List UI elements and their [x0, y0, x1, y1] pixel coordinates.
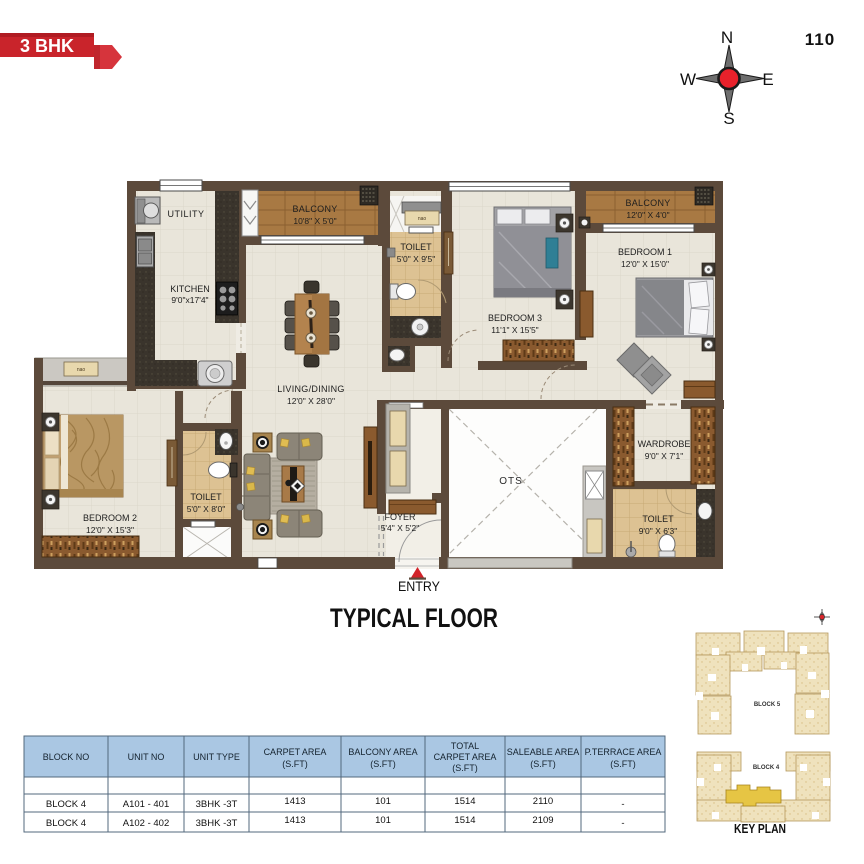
svg-text:UTILITY: UTILITY	[167, 209, 204, 219]
svg-text:(S.FT): (S.FT)	[530, 759, 556, 769]
svg-text:3BHK -3T: 3BHK -3T	[196, 818, 238, 829]
svg-text:S: S	[723, 109, 734, 128]
svg-text:nao: nao	[418, 216, 427, 222]
svg-text:CARPET AREA: CARPET AREA	[434, 752, 497, 762]
svg-text:2110: 2110	[533, 796, 553, 807]
svg-text:(S.FT): (S.FT)	[282, 759, 308, 769]
svg-text:OTS: OTS	[499, 476, 523, 487]
svg-text:BLOCK 4: BLOCK 4	[46, 799, 86, 810]
svg-text:12'0" X 4'0": 12'0" X 4'0"	[626, 210, 669, 220]
svg-text:UNIT NO: UNIT NO	[128, 752, 165, 762]
svg-text:CARPET AREA: CARPET AREA	[264, 747, 327, 757]
svg-text:5'0" X 8'0": 5'0" X 8'0"	[187, 504, 226, 514]
svg-text:9'0" X 6'3": 9'0" X 6'3"	[639, 526, 678, 536]
svg-text:TYPICAL FLOOR: TYPICAL FLOOR	[330, 603, 498, 633]
svg-text:12'0" X 15'3": 12'0" X 15'3"	[86, 525, 134, 535]
svg-text:UNIT TYPE: UNIT TYPE	[193, 752, 240, 762]
svg-text:TOILET: TOILET	[190, 492, 222, 502]
svg-text:(S.FT): (S.FT)	[610, 759, 636, 769]
svg-text:TOILET: TOILET	[642, 514, 674, 524]
svg-text:2109: 2109	[532, 815, 553, 826]
svg-text:ENTRY: ENTRY	[398, 578, 441, 594]
svg-text:nao: nao	[77, 367, 86, 373]
svg-text:12'0" X 15'0": 12'0" X 15'0"	[621, 259, 669, 269]
svg-text:P.TERRACE AREA: P.TERRACE AREA	[585, 747, 662, 757]
svg-text:1413: 1413	[284, 796, 305, 807]
svg-text:101: 101	[375, 796, 391, 807]
svg-text:A102 - 402: A102 - 402	[123, 818, 169, 829]
svg-text:A101 - 401: A101 - 401	[123, 799, 169, 810]
svg-text:-: -	[621, 818, 624, 829]
svg-text:3 BHK: 3 BHK	[20, 36, 74, 56]
svg-text:LIVING/DINING: LIVING/DINING	[277, 384, 344, 394]
svg-text:W: W	[680, 70, 696, 89]
svg-text:BEDROOM 1: BEDROOM 1	[618, 247, 672, 257]
svg-text:N: N	[721, 28, 733, 47]
svg-text:110: 110	[805, 30, 835, 49]
svg-text:SALEABLE AREA: SALEABLE AREA	[507, 747, 580, 757]
svg-text:BEDROOM 2: BEDROOM 2	[83, 513, 137, 523]
svg-text:9'0" X 7'1": 9'0" X 7'1"	[645, 451, 684, 461]
svg-text:1413: 1413	[284, 815, 305, 826]
svg-text:(S.FT): (S.FT)	[452, 763, 478, 773]
svg-text:BALCONY: BALCONY	[292, 204, 337, 214]
svg-text:KEY PLAN: KEY PLAN	[734, 821, 786, 836]
svg-text:WARDROBE: WARDROBE	[638, 439, 691, 449]
svg-text:1514: 1514	[454, 796, 475, 807]
svg-text:3BHK -3T: 3BHK -3T	[196, 799, 238, 810]
svg-text:12'0" X 28'0": 12'0" X 28'0"	[287, 396, 335, 406]
svg-text:KITCHEN: KITCHEN	[170, 284, 210, 294]
svg-text:101: 101	[375, 815, 391, 826]
svg-text:10'8" X 5'0": 10'8" X 5'0"	[293, 216, 336, 226]
svg-text:TOTAL: TOTAL	[451, 741, 479, 751]
svg-text:9'0"x17'4": 9'0"x17'4"	[171, 295, 208, 305]
svg-text:BEDROOM 3: BEDROOM 3	[488, 313, 542, 323]
svg-text:TOILET: TOILET	[400, 242, 432, 252]
svg-text:BALCONY AREA: BALCONY AREA	[348, 747, 417, 757]
svg-text:BLOCK NO: BLOCK NO	[43, 752, 90, 762]
svg-text:-: -	[621, 799, 624, 810]
svg-text:(S.FT): (S.FT)	[370, 759, 396, 769]
svg-text:BLOCK 4: BLOCK 4	[46, 818, 86, 829]
svg-text:BLOCK 4: BLOCK 4	[753, 765, 780, 771]
svg-text:BALCONY: BALCONY	[625, 198, 670, 208]
svg-text:5'4" X 5'2": 5'4" X 5'2"	[381, 523, 420, 533]
svg-text:E: E	[762, 70, 773, 89]
svg-text:FOYER: FOYER	[384, 512, 416, 522]
svg-text:11'1" X 15'5": 11'1" X 15'5"	[491, 325, 538, 335]
svg-text:5'0" X 9'5": 5'0" X 9'5"	[397, 254, 436, 264]
svg-text:1514: 1514	[454, 815, 475, 826]
svg-text:BLOCK 5: BLOCK 5	[754, 702, 781, 708]
